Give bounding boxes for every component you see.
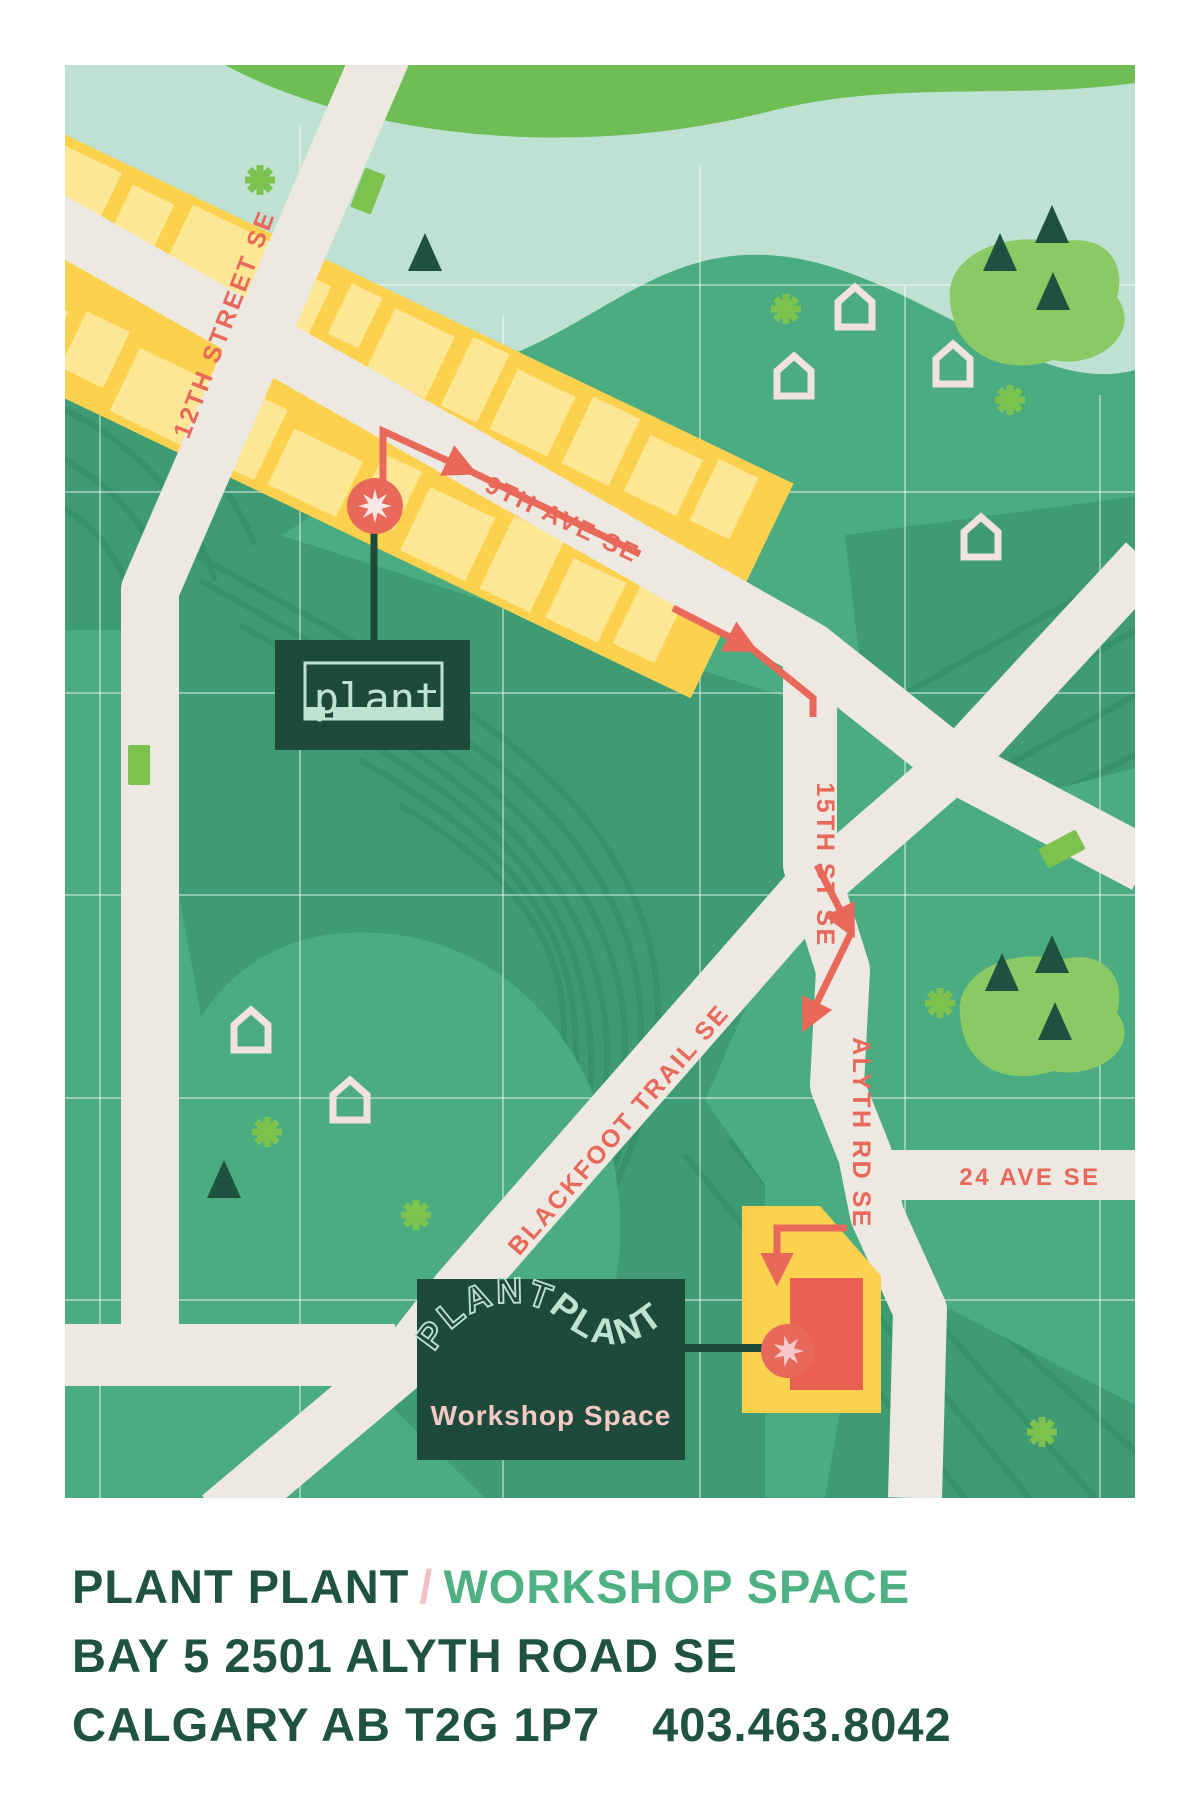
caption-title-1: PLANT PLANT — [72, 1560, 409, 1613]
tree-grove-blob — [950, 239, 1125, 365]
flower-icon — [401, 1200, 431, 1230]
caption-address: BAY 5 2501 ALYTH ROAD SE — [72, 1621, 1152, 1690]
map-canvas: 12TH STREET SE 9TH AVE SE 15TH ST SE BLA… — [65, 65, 1135, 1498]
car-icon — [128, 745, 150, 785]
start-marker-star-icon — [358, 489, 392, 523]
street-label-alyth: ALYTH RD SE — [847, 1037, 875, 1229]
workshop-sign: PLANT PLANT Workshop Space — [407, 1270, 685, 1460]
plant-sign: plant — [275, 640, 470, 750]
flower-icon — [995, 385, 1025, 415]
caption-title-line: PLANT PLANT/WORKSHOP SPACE — [72, 1552, 1152, 1621]
poster-page: 12TH STREET SE 9TH AVE SE 15TH ST SE BLA… — [0, 0, 1200, 1800]
flower-icon — [1027, 1417, 1057, 1447]
flower-icon — [771, 294, 801, 324]
caption-title-2: WORKSHOP SPACE — [443, 1560, 910, 1613]
caption-block: PLANT PLANT/WORKSHOP SPACE BAY 5 2501 AL… — [72, 1552, 1152, 1759]
flower-icon — [245, 165, 275, 195]
tree-grove-blob — [960, 956, 1125, 1076]
caption-phone: 403.463.8042 — [652, 1698, 952, 1751]
flower-icon — [252, 1117, 282, 1147]
caption-separator: / — [409, 1560, 443, 1613]
caption-city: CALGARY AB T2G 1P7 — [72, 1698, 600, 1751]
caption-city-phone-line: CALGARY AB T2G 1P7403.463.8042 — [72, 1690, 1152, 1759]
flower-icon — [925, 988, 955, 1018]
illustrated-map: 12TH STREET SE 9TH AVE SE 15TH ST SE BLA… — [65, 65, 1135, 1498]
street-label-24-ave: 24 AVE SE — [959, 1164, 1100, 1191]
street-label-15th: 15TH ST SE — [811, 782, 839, 947]
plant-sign-label: plant — [314, 674, 440, 723]
workshop-sign-subtitle: Workshop Space — [431, 1400, 672, 1431]
